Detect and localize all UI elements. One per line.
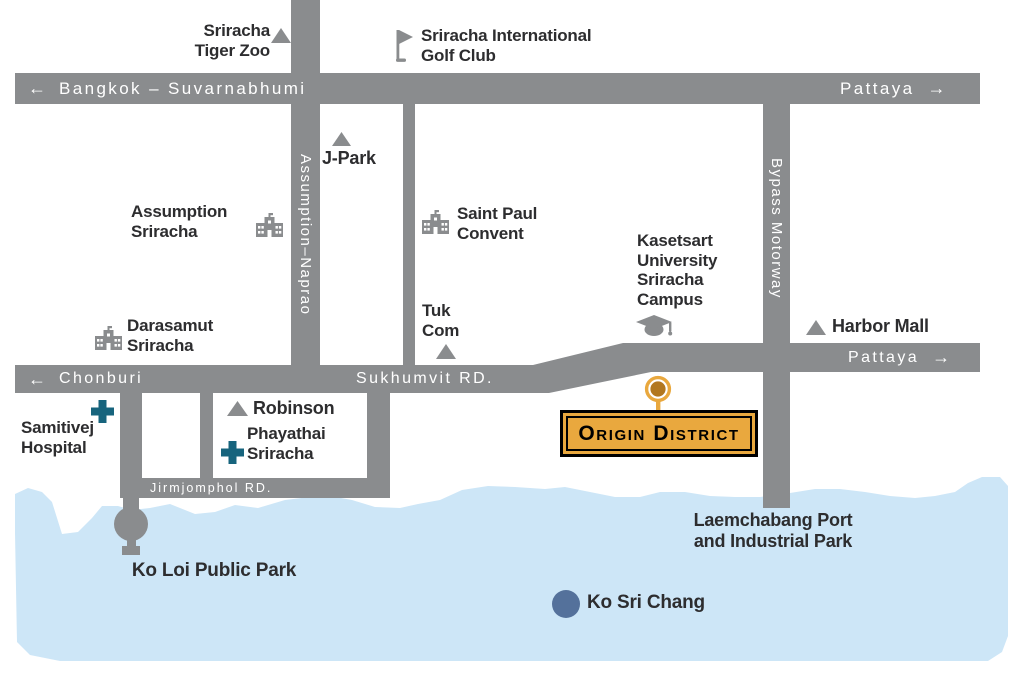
road-label-bypass-motorway: Bypass Motorway: [763, 128, 790, 328]
road-label-pattaya-top: Pattaya →: [840, 73, 945, 104]
saint-paul-school-icon: [422, 210, 449, 235]
arrow-right-icon: →: [927, 78, 945, 99]
ko-sri-chang-island-icon: [551, 589, 581, 619]
label-ko-loi-public-park: Ko Loi Public Park: [114, 560, 314, 582]
road-name-pattaya-top: Pattaya: [840, 79, 914, 99]
ko-loi-stem: [127, 539, 136, 547]
road-minor-vertical: [403, 104, 415, 365]
label-saint-paul-convent: Saint Paul Convent: [457, 204, 537, 243]
phayathai-cross-icon: [221, 441, 244, 464]
road-label-bangkok: ← Bangkok – Suvarnabhumi: [28, 73, 306, 104]
road-label-assumption-naprao: Assumption–Naprao: [291, 110, 320, 360]
darasamut-school-icon: [95, 326, 122, 351]
ko-loi-roundabout: [114, 507, 148, 541]
road-label-chonburi: ← Chonburi: [28, 365, 143, 393]
label-robinson: Robinson: [253, 398, 334, 419]
label-laemchabang-port: Laemchabang Port and Industrial Park: [640, 510, 906, 552]
label-phayathai-sriracha: Phayathai Sriracha: [247, 424, 326, 463]
label-assumption-sriracha: Assumption Sriracha: [131, 202, 227, 241]
tiger-zoo-triangle-icon: [271, 28, 291, 43]
arrow-left-icon: ←: [28, 369, 46, 390]
road-name-chonburi: Chonburi: [59, 370, 143, 388]
arrow-right-icon: →: [932, 347, 950, 368]
sriracha-area-map: ← Bangkok – Suvarnabhumi Pattaya → ← Cho…: [0, 0, 1024, 678]
road-name-bypass-motorway: Bypass Motorway: [768, 158, 785, 299]
label-sriracha-international-golf-club: Sriracha International Golf Club: [421, 26, 591, 65]
road-name-pattaya-mid: Pattaya: [848, 349, 919, 367]
harbor-mall-triangle-icon: [806, 320, 826, 335]
robinson-triangle-icon: [227, 401, 248, 416]
road-label-jirmjomphol: Jirmjomphol RD.: [150, 478, 272, 498]
road-name-assumption-naprao: Assumption–Naprao: [297, 154, 314, 315]
origin-district-pin: [643, 375, 673, 415]
origin-district-sign: Origin District: [560, 410, 758, 457]
label-j-park: J-Park: [322, 148, 376, 169]
road-name-bangkok: Bangkok – Suvarnabhumi: [59, 79, 306, 99]
graduation-cap-icon: [636, 315, 676, 338]
samitivej-cross-icon: [91, 400, 114, 423]
label-sriracha-tiger-zoo: Sriracha Tiger Zoo: [152, 21, 270, 60]
road-name-jirmjomphol: Jirmjomphol RD.: [150, 481, 272, 495]
ko-loi-pier: [122, 546, 140, 555]
road-name-sukhumvit: Sukhumvit RD.: [356, 370, 494, 388]
road-side-mid: [200, 393, 213, 483]
arrow-left-icon: ←: [28, 78, 46, 99]
road-label-pattaya-mid: Pattaya →: [848, 343, 950, 372]
label-samitivej-hospital: Samitivej Hospital: [21, 418, 94, 457]
label-ko-sri-chang: Ko Sri Chang: [587, 592, 705, 614]
origin-district-sign-text: Origin District: [566, 416, 752, 451]
tuk-com-triangle-icon: [436, 344, 456, 359]
road-label-sukhumvit: Sukhumvit RD.: [356, 365, 494, 393]
label-darasamut-sriracha: Darasamut Sriracha: [127, 316, 213, 355]
label-tuk-com: Tuk Com: [422, 301, 459, 340]
j-park-triangle-icon: [332, 132, 351, 146]
label-harbor-mall: Harbor Mall: [832, 316, 929, 337]
golf-flag-icon: [396, 29, 414, 64]
assumption-school-icon: [256, 213, 283, 238]
label-kasetsart-university: Kasetsart University Sriracha Campus: [637, 231, 717, 310]
